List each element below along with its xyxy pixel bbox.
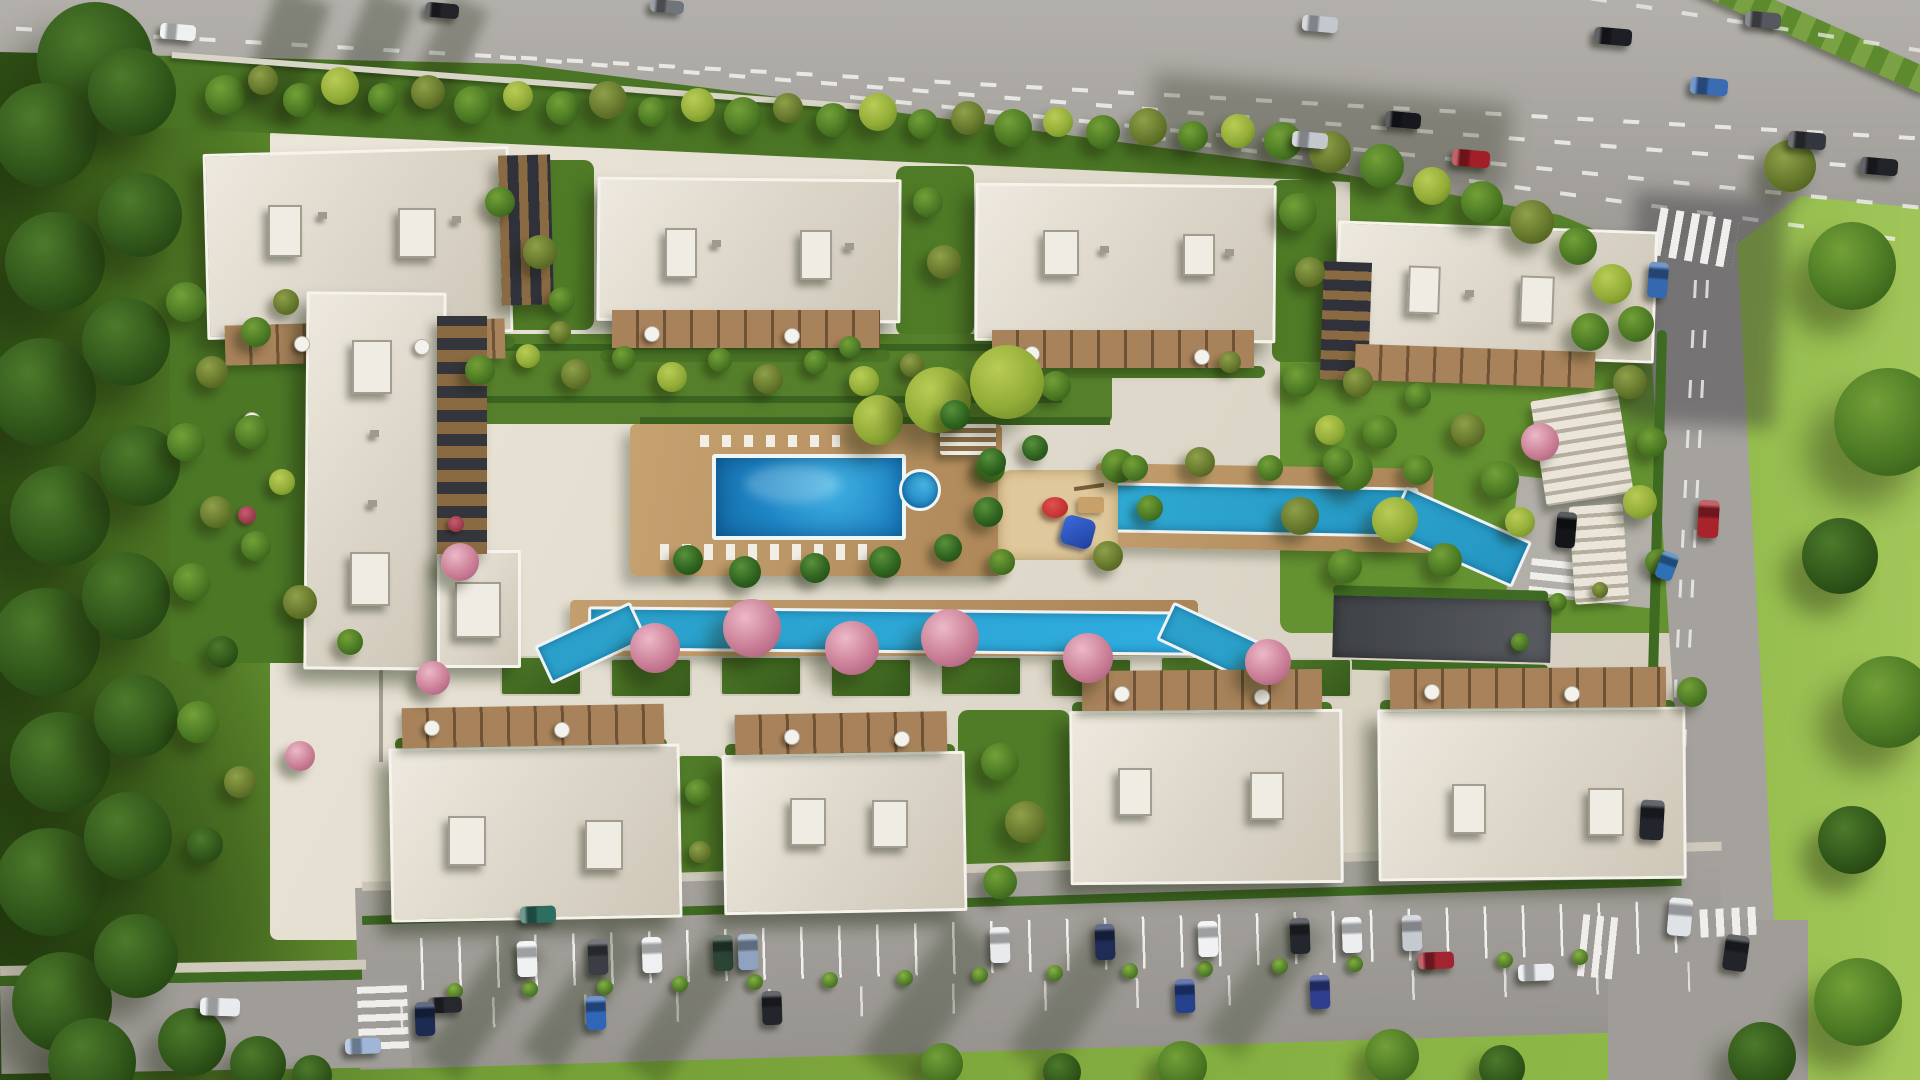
dark-tree xyxy=(84,792,172,880)
tree xyxy=(1549,593,1567,611)
flowering-pink-tree xyxy=(441,543,479,581)
tree xyxy=(1461,181,1503,223)
lime-tree xyxy=(269,469,295,495)
car xyxy=(1697,499,1720,538)
tree xyxy=(1403,455,1433,485)
bush xyxy=(822,972,838,988)
olive-tree xyxy=(1510,200,1554,244)
car xyxy=(641,937,662,974)
tree xyxy=(241,531,271,561)
tree xyxy=(1257,455,1283,481)
building-2-roof-hatch-2 xyxy=(800,230,832,280)
tree xyxy=(816,103,850,137)
umbrella xyxy=(1254,689,1270,705)
tree xyxy=(1559,227,1597,265)
olive-tree xyxy=(753,364,783,394)
umbrella xyxy=(554,722,570,738)
tree xyxy=(1360,144,1404,188)
building-5-roof-hatch-1 xyxy=(352,340,392,394)
car xyxy=(200,997,241,1016)
flowering-pink-tree xyxy=(921,609,979,667)
olive-tree xyxy=(773,93,803,123)
flowering-pink-tree xyxy=(1063,633,1113,683)
building-5-roof-vent-2 xyxy=(368,500,377,507)
car xyxy=(1384,110,1421,129)
tree xyxy=(612,346,636,370)
building-6-roof xyxy=(389,743,683,922)
tree xyxy=(465,355,495,385)
flower-bush-red xyxy=(238,506,256,524)
tree xyxy=(549,287,575,313)
umbrella xyxy=(784,328,800,344)
tree xyxy=(1283,363,1317,397)
palm-tree xyxy=(973,497,1003,527)
umbrella xyxy=(1114,686,1130,702)
lime-tree xyxy=(853,395,903,445)
lime-tree xyxy=(859,93,897,131)
bush xyxy=(597,979,613,995)
olive-tree xyxy=(1613,365,1647,399)
palm-tree xyxy=(1022,435,1048,461)
tree xyxy=(235,415,269,449)
bush xyxy=(972,967,988,983)
tree xyxy=(1677,677,1707,707)
tree xyxy=(1637,427,1667,457)
bush xyxy=(522,981,538,997)
building-4-roof-hatch-1 xyxy=(1407,265,1441,314)
building-4-roof-hatch-2 xyxy=(1519,275,1555,324)
umbrella xyxy=(644,326,660,342)
building-7-roof xyxy=(722,751,968,915)
building-2-roof-vent-1 xyxy=(712,240,721,247)
bush xyxy=(1047,965,1063,981)
car xyxy=(1291,130,1328,149)
car xyxy=(1593,26,1632,46)
dark-tree xyxy=(1818,806,1886,874)
tree xyxy=(485,187,515,217)
building-4-roof-vent xyxy=(1465,290,1474,297)
tree xyxy=(1618,306,1654,342)
palm-tree xyxy=(800,553,830,583)
car xyxy=(1418,951,1455,969)
tree xyxy=(989,549,1015,575)
tree xyxy=(166,282,206,322)
dark-tree xyxy=(5,212,105,312)
olive-tree xyxy=(1343,367,1373,397)
car xyxy=(1722,934,1751,973)
olive-tree xyxy=(200,496,232,528)
flowering-pink-tree xyxy=(723,599,781,657)
tree xyxy=(205,75,245,115)
flowering-pink-tree xyxy=(1245,639,1291,685)
building-1-balcony-wing xyxy=(498,154,554,305)
olive-tree xyxy=(1185,447,1215,477)
tree xyxy=(1808,222,1896,310)
flowering-pink-tree xyxy=(1521,423,1559,461)
dark-tree xyxy=(187,827,223,863)
umbrella xyxy=(294,336,310,352)
sun-loungers-north xyxy=(700,435,840,447)
olive-tree xyxy=(1093,541,1123,571)
car xyxy=(761,991,782,1026)
building-9-roof-hatch-2 xyxy=(1588,788,1624,836)
tree xyxy=(724,97,762,135)
tree xyxy=(685,779,711,805)
dark-tree xyxy=(1802,518,1878,594)
building-3-roof-hatch-2 xyxy=(1183,234,1215,276)
lime-tree xyxy=(1221,114,1255,148)
olive-tree xyxy=(1592,582,1608,598)
dark-tree xyxy=(88,48,176,136)
palm-tree xyxy=(673,545,703,575)
olive-tree xyxy=(283,585,317,619)
car xyxy=(516,941,537,978)
olive-tree xyxy=(549,321,571,343)
car xyxy=(1289,918,1310,955)
bush xyxy=(672,976,688,992)
tree xyxy=(241,317,271,347)
car xyxy=(1787,130,1826,150)
playground-structure xyxy=(1078,497,1104,513)
dark-tree xyxy=(10,466,110,566)
tree xyxy=(368,83,398,113)
olive-tree xyxy=(689,841,711,863)
car xyxy=(520,905,557,923)
umbrella xyxy=(1424,684,1440,700)
umbrella xyxy=(1564,686,1580,702)
round-spa-pool xyxy=(899,469,941,511)
car xyxy=(1451,148,1490,168)
car xyxy=(1401,915,1422,952)
car xyxy=(1301,14,1338,33)
flowering-pink-tree xyxy=(630,623,680,673)
building-5-roof-vent-1 xyxy=(370,430,379,437)
car xyxy=(1744,10,1781,29)
bush xyxy=(1272,958,1288,974)
tree xyxy=(994,109,1032,147)
bush xyxy=(1497,952,1513,968)
aerial-site-plan-render xyxy=(0,0,1920,1080)
car xyxy=(345,1037,382,1054)
flowering-pink-tree xyxy=(825,621,879,675)
umbrella xyxy=(894,731,910,747)
building-5-roof-hatch-2 xyxy=(350,552,390,606)
tree xyxy=(1511,633,1529,651)
building-6-terraces xyxy=(402,704,665,749)
bush xyxy=(1572,949,1588,965)
lime-tree xyxy=(657,362,687,392)
tree xyxy=(1365,1029,1419,1080)
olive-tree xyxy=(1451,413,1485,447)
dark-tree xyxy=(94,914,178,998)
lime-tree xyxy=(1413,167,1451,205)
car xyxy=(585,996,606,1031)
lime-tree xyxy=(1592,264,1632,304)
car xyxy=(414,1002,435,1037)
olive-tree xyxy=(248,65,278,95)
car xyxy=(712,935,733,972)
building-8-roof xyxy=(1069,709,1344,885)
umbrella xyxy=(784,729,800,745)
building-2-roof-hatch-1 xyxy=(665,228,697,278)
crosswalk-junction-right-road xyxy=(1699,906,1762,937)
tree xyxy=(804,350,828,374)
palm-tree xyxy=(934,534,962,562)
car xyxy=(1174,979,1195,1014)
building-7-roof-hatch-1 xyxy=(790,798,826,846)
lime-tree xyxy=(1505,507,1535,537)
car xyxy=(1554,511,1577,549)
palm-tree xyxy=(978,448,1006,476)
car xyxy=(424,2,459,20)
tree xyxy=(177,701,219,743)
building-1-roof-vent-2 xyxy=(452,216,461,223)
dark-tree xyxy=(94,674,178,758)
tree xyxy=(1481,461,1519,499)
bush xyxy=(747,974,763,990)
umbrella xyxy=(414,339,430,355)
lime-tree xyxy=(1623,485,1657,519)
tree xyxy=(913,187,943,217)
building-6-roof-hatch-2 xyxy=(585,820,623,870)
palm-tree xyxy=(729,556,761,588)
tree xyxy=(839,336,861,358)
tree xyxy=(167,423,205,461)
tree xyxy=(1814,958,1902,1046)
lime-tree xyxy=(970,345,1044,419)
building-3-roof xyxy=(974,183,1276,344)
dark-tree xyxy=(82,552,170,640)
building-3-roof-vent-1 xyxy=(1100,246,1109,253)
dark-tree xyxy=(98,173,182,257)
tree xyxy=(921,1043,963,1080)
olive-tree xyxy=(589,81,627,119)
tree xyxy=(1137,495,1163,521)
building-1-roof-vent-1 xyxy=(318,212,327,219)
building-8-roof-hatch-2 xyxy=(1250,772,1284,820)
tree xyxy=(908,109,938,139)
tree xyxy=(337,629,363,655)
lime-tree xyxy=(516,344,540,368)
garden-band-hedge-2 xyxy=(462,396,1062,403)
tree xyxy=(1363,415,1397,449)
olive-tree xyxy=(196,356,228,388)
tree xyxy=(1041,371,1071,401)
car xyxy=(159,22,196,41)
bush xyxy=(1347,956,1363,972)
building-3-roof-hatch-1 xyxy=(1043,230,1079,276)
building-9-roof-hatch-1 xyxy=(1452,784,1486,834)
lime-tree xyxy=(1315,415,1345,445)
olive-tree xyxy=(927,245,961,279)
lime-tree xyxy=(1043,107,1073,137)
car xyxy=(1341,917,1362,954)
lime-tree xyxy=(1372,497,1418,543)
car xyxy=(1639,799,1665,840)
building-7-roof-hatch-2 xyxy=(872,800,908,848)
main-pool-reflection xyxy=(745,465,840,503)
lime-tree xyxy=(849,366,879,396)
building-7-terraces xyxy=(735,711,948,755)
tree xyxy=(173,563,211,601)
tree xyxy=(1428,543,1462,577)
building-3-roof-vent-2 xyxy=(1225,249,1234,256)
bush xyxy=(897,970,913,986)
flowering-pink-tree xyxy=(285,741,315,771)
flower-bush-red xyxy=(448,516,464,532)
car xyxy=(1094,924,1115,961)
olive-tree xyxy=(1219,351,1241,373)
car xyxy=(737,934,758,971)
tree xyxy=(708,348,732,372)
flowering-pink-tree xyxy=(416,661,450,695)
car xyxy=(1197,921,1218,958)
olive-tree xyxy=(951,101,985,135)
car xyxy=(1689,76,1728,96)
tree xyxy=(1323,447,1353,477)
building-6-roof-hatch-1 xyxy=(448,816,486,866)
car xyxy=(1309,975,1330,1010)
tree xyxy=(983,865,1017,899)
car xyxy=(989,927,1010,964)
dark-tree xyxy=(82,298,170,386)
car xyxy=(587,939,608,976)
tree xyxy=(1122,455,1148,481)
garage-ramp xyxy=(1332,595,1552,663)
building-1-roof-hatch-1 xyxy=(268,205,302,257)
olive-tree xyxy=(1281,497,1319,535)
lime-tree xyxy=(321,67,359,105)
tree xyxy=(1086,115,1120,149)
olive-tree xyxy=(523,235,557,269)
olive-tree xyxy=(273,289,299,315)
car xyxy=(1647,261,1669,298)
olive-tree xyxy=(1005,801,1047,843)
crosswalk-entrance-spur xyxy=(1577,914,1623,980)
tree xyxy=(1279,193,1317,231)
palm-tree xyxy=(869,546,901,578)
building-2-roof-vent-2 xyxy=(845,243,854,250)
tree xyxy=(1405,383,1431,409)
playground-red-dome xyxy=(1042,497,1068,518)
lime-tree xyxy=(503,81,533,111)
building-2-roof xyxy=(596,177,901,324)
tree xyxy=(546,91,580,125)
bush xyxy=(1122,963,1138,979)
tree xyxy=(1328,549,1362,583)
lime-tree xyxy=(681,88,715,122)
tree xyxy=(283,83,317,117)
dark-tree xyxy=(206,636,238,668)
olive-tree xyxy=(1295,257,1325,287)
palm-tree xyxy=(940,400,970,430)
car xyxy=(1666,897,1693,937)
car xyxy=(1518,963,1555,981)
olive-tree xyxy=(224,766,256,798)
tree xyxy=(454,86,492,124)
dark-tree xyxy=(158,1008,226,1076)
building-1-roof-hatch-2 xyxy=(398,208,436,258)
building-9-roof xyxy=(1377,707,1686,882)
olive-tree xyxy=(411,75,445,109)
bush xyxy=(1197,961,1213,977)
umbrella xyxy=(1194,349,1210,365)
olive-tree xyxy=(561,359,591,389)
tree xyxy=(638,97,668,127)
umbrella xyxy=(424,720,440,736)
planter-3 xyxy=(720,656,802,696)
building-5-wing-hatch xyxy=(455,582,501,638)
olive-tree xyxy=(1129,108,1167,146)
car xyxy=(1859,156,1898,176)
building-8-roof-hatch-1 xyxy=(1118,768,1152,816)
tree xyxy=(981,743,1019,781)
tree xyxy=(1571,313,1609,351)
tree xyxy=(1178,121,1208,151)
